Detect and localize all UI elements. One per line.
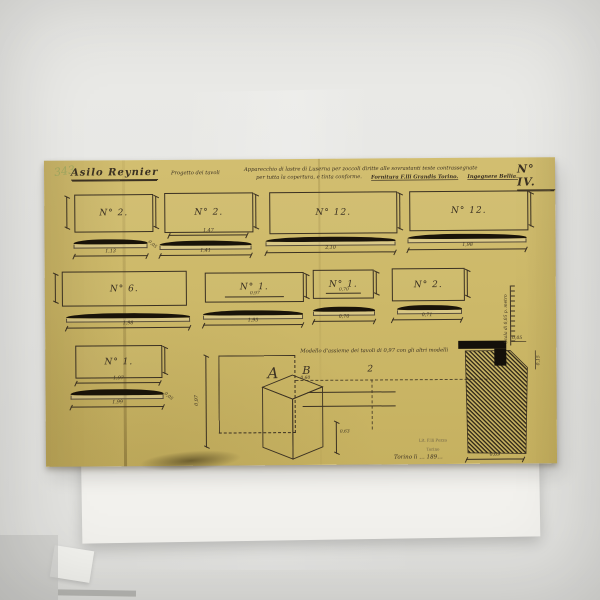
dimension-value: 0,97 [194, 395, 199, 406]
dimension-line [205, 356, 207, 448]
inner-dimension: 0,97 [225, 296, 283, 297]
thickness-note: 0,05 [163, 391, 174, 401]
width-dimension: 0,70 [313, 320, 375, 321]
plank-side-view [73, 239, 147, 248]
drawing-panel-2: N° 2. 1,47 1,41 [44, 157, 555, 161]
dimension-line [306, 274, 307, 298]
plan-rectangle: N° 12. [409, 190, 528, 231]
dimension-value: 1,95 [248, 317, 259, 322]
dimension-line [399, 193, 400, 229]
dimension-value: 1,97 [113, 375, 124, 380]
hatched-section [465, 350, 528, 453]
panel-label: N° 12. [315, 208, 351, 218]
width-dimension: 1,13 [74, 255, 148, 257]
height-dimension [336, 422, 337, 454]
dimension-value: 2,10 [325, 245, 336, 250]
panel-label: N° 2. [194, 208, 223, 218]
dimension-line [66, 197, 67, 229]
width-dimension: 0,71 [392, 319, 462, 320]
panel-label: N° 1. [104, 357, 133, 367]
drawing-panel-3: N° 12. 2,10 [44, 157, 555, 161]
plan-rectangle: N° 1. [75, 345, 162, 379]
inner-dimension: 0,70 [326, 293, 361, 294]
shadow-patch [0, 535, 58, 600]
photo-background: 343 Asilo Reynier Progetto dei tavoli Ap… [0, 0, 600, 600]
dimension-value: 1,47 [203, 227, 214, 232]
panel-label: N° 2. [99, 208, 128, 218]
center-mark: 2 [367, 364, 373, 374]
dimension-value: 1,98 [123, 320, 134, 325]
dimension-value: 0,09 [490, 451, 501, 456]
rect-dimension: 1,47 [168, 234, 247, 236]
width-dimension: 1,98 [66, 327, 190, 329]
drawing-panel-6: N° 1. 0,97 1,95 [44, 157, 555, 161]
shadow-sliver [58, 589, 136, 596]
stamp-line-2: Torino [415, 447, 450, 452]
dimension-line [155, 196, 156, 228]
width-dimension: 1,95 [203, 324, 303, 326]
plan-rectangle: N° 1. 0,97 [205, 272, 304, 303]
dimension-value: 1,41 [200, 247, 211, 252]
box-b-drawing [250, 371, 341, 467]
dimension-line [530, 192, 531, 226]
assembly-drawing: Modello d'assieme dei tavoli di 0,97 con… [44, 157, 555, 161]
plan-rectangle: N° 2. [74, 194, 153, 233]
panel-label: N° 12. [451, 206, 487, 216]
tissue-crease [0, 84, 600, 167]
thickness-note: 0,05 [147, 239, 158, 249]
dimension-line [55, 274, 56, 303]
dimension-value: 0,70 [338, 287, 348, 292]
section-profile-drawing: 0,05 0,15 [455, 335, 556, 466]
drawing-panel-1: N° 2. 0,05 1,13 [44, 157, 555, 161]
dimension-line [255, 194, 256, 228]
description-line-2: per tutta la copertura, e tinta conforme… [256, 172, 518, 181]
dimension-value: 0,97 [249, 290, 259, 295]
drawing-panel-4: N° 12. 1,98 [44, 157, 555, 161]
width-dimension: 1,98 [408, 248, 527, 250]
description-text: per tutta la copertura, e tinta conforme… [256, 174, 362, 182]
drawing-panel-8: N° 2. 0,71 [44, 157, 555, 161]
plate-number: N° IV. [517, 162, 555, 190]
dimension-line [376, 271, 377, 294]
scale-ruler [510, 286, 515, 346]
dimension-value: 1,99 [112, 399, 123, 404]
dimension-line [164, 347, 165, 374]
plank-side-view [71, 389, 164, 400]
stamp-line-1: Lit. F.lli Pozzo [415, 438, 450, 443]
description-line-1: Apparecchio di lastre di Luserna per zoc… [244, 165, 477, 172]
panel-label: N° 6. [110, 284, 139, 294]
rect-dimension: 1,97 [75, 382, 160, 384]
black-bracket-stem [494, 349, 506, 366]
dimension-value: 0,63 [340, 429, 350, 434]
section-profile: 0,05 0,15 0,09 Scala di 0,05 p. metro [44, 157, 555, 161]
width-dimension: 1,41 [160, 254, 252, 256]
black-bracket-bar [458, 341, 506, 349]
drawing-paper: 343 Asilo Reynier Progetto dei tavoli Ap… [44, 157, 557, 467]
drawing-panel-7: N° 1. 0,70 0,70 [44, 157, 555, 161]
plan-rectangle: N° 6. [62, 271, 187, 307]
width-dimension: 1,99 [71, 406, 164, 408]
drawing-panel-5: N° 6. 1,98 [44, 157, 555, 161]
date-note: Torino li … 189… [394, 454, 443, 461]
scale-ruler-label: Scala di 0,05 p. metro [503, 294, 508, 343]
assembly-caption: Modello d'assieme dei tavoli di 0,97 con… [300, 347, 448, 354]
dimension-value: 0,15 [535, 355, 541, 365]
plan-rectangle: N° 2. [392, 268, 465, 302]
dimension-value: 1,98 [462, 242, 473, 247]
panel-label: N° 2. [414, 280, 443, 290]
page-subtitle: Progetto dei tavoli [171, 170, 220, 176]
dimension-value: 1,13 [105, 248, 116, 253]
engineer-note: Ingegnere Bellia. [467, 172, 518, 180]
page-title: Asilo Reynier [71, 167, 158, 181]
plan-rectangle: N° 12. [269, 191, 397, 234]
plan-rectangle: N° 1. 0,70 [313, 269, 374, 298]
dimension-value: 0,70 [339, 313, 350, 318]
drawing-panel-9: N° 1. 1,97 0,05 1,99 [44, 157, 555, 161]
dimension-value: 0,71 [422, 312, 433, 317]
dimension-line [467, 270, 468, 297]
supplier-note: Fornitura F.lli Grandis Torino. [371, 173, 458, 181]
width-dimension: 2,10 [266, 251, 396, 253]
